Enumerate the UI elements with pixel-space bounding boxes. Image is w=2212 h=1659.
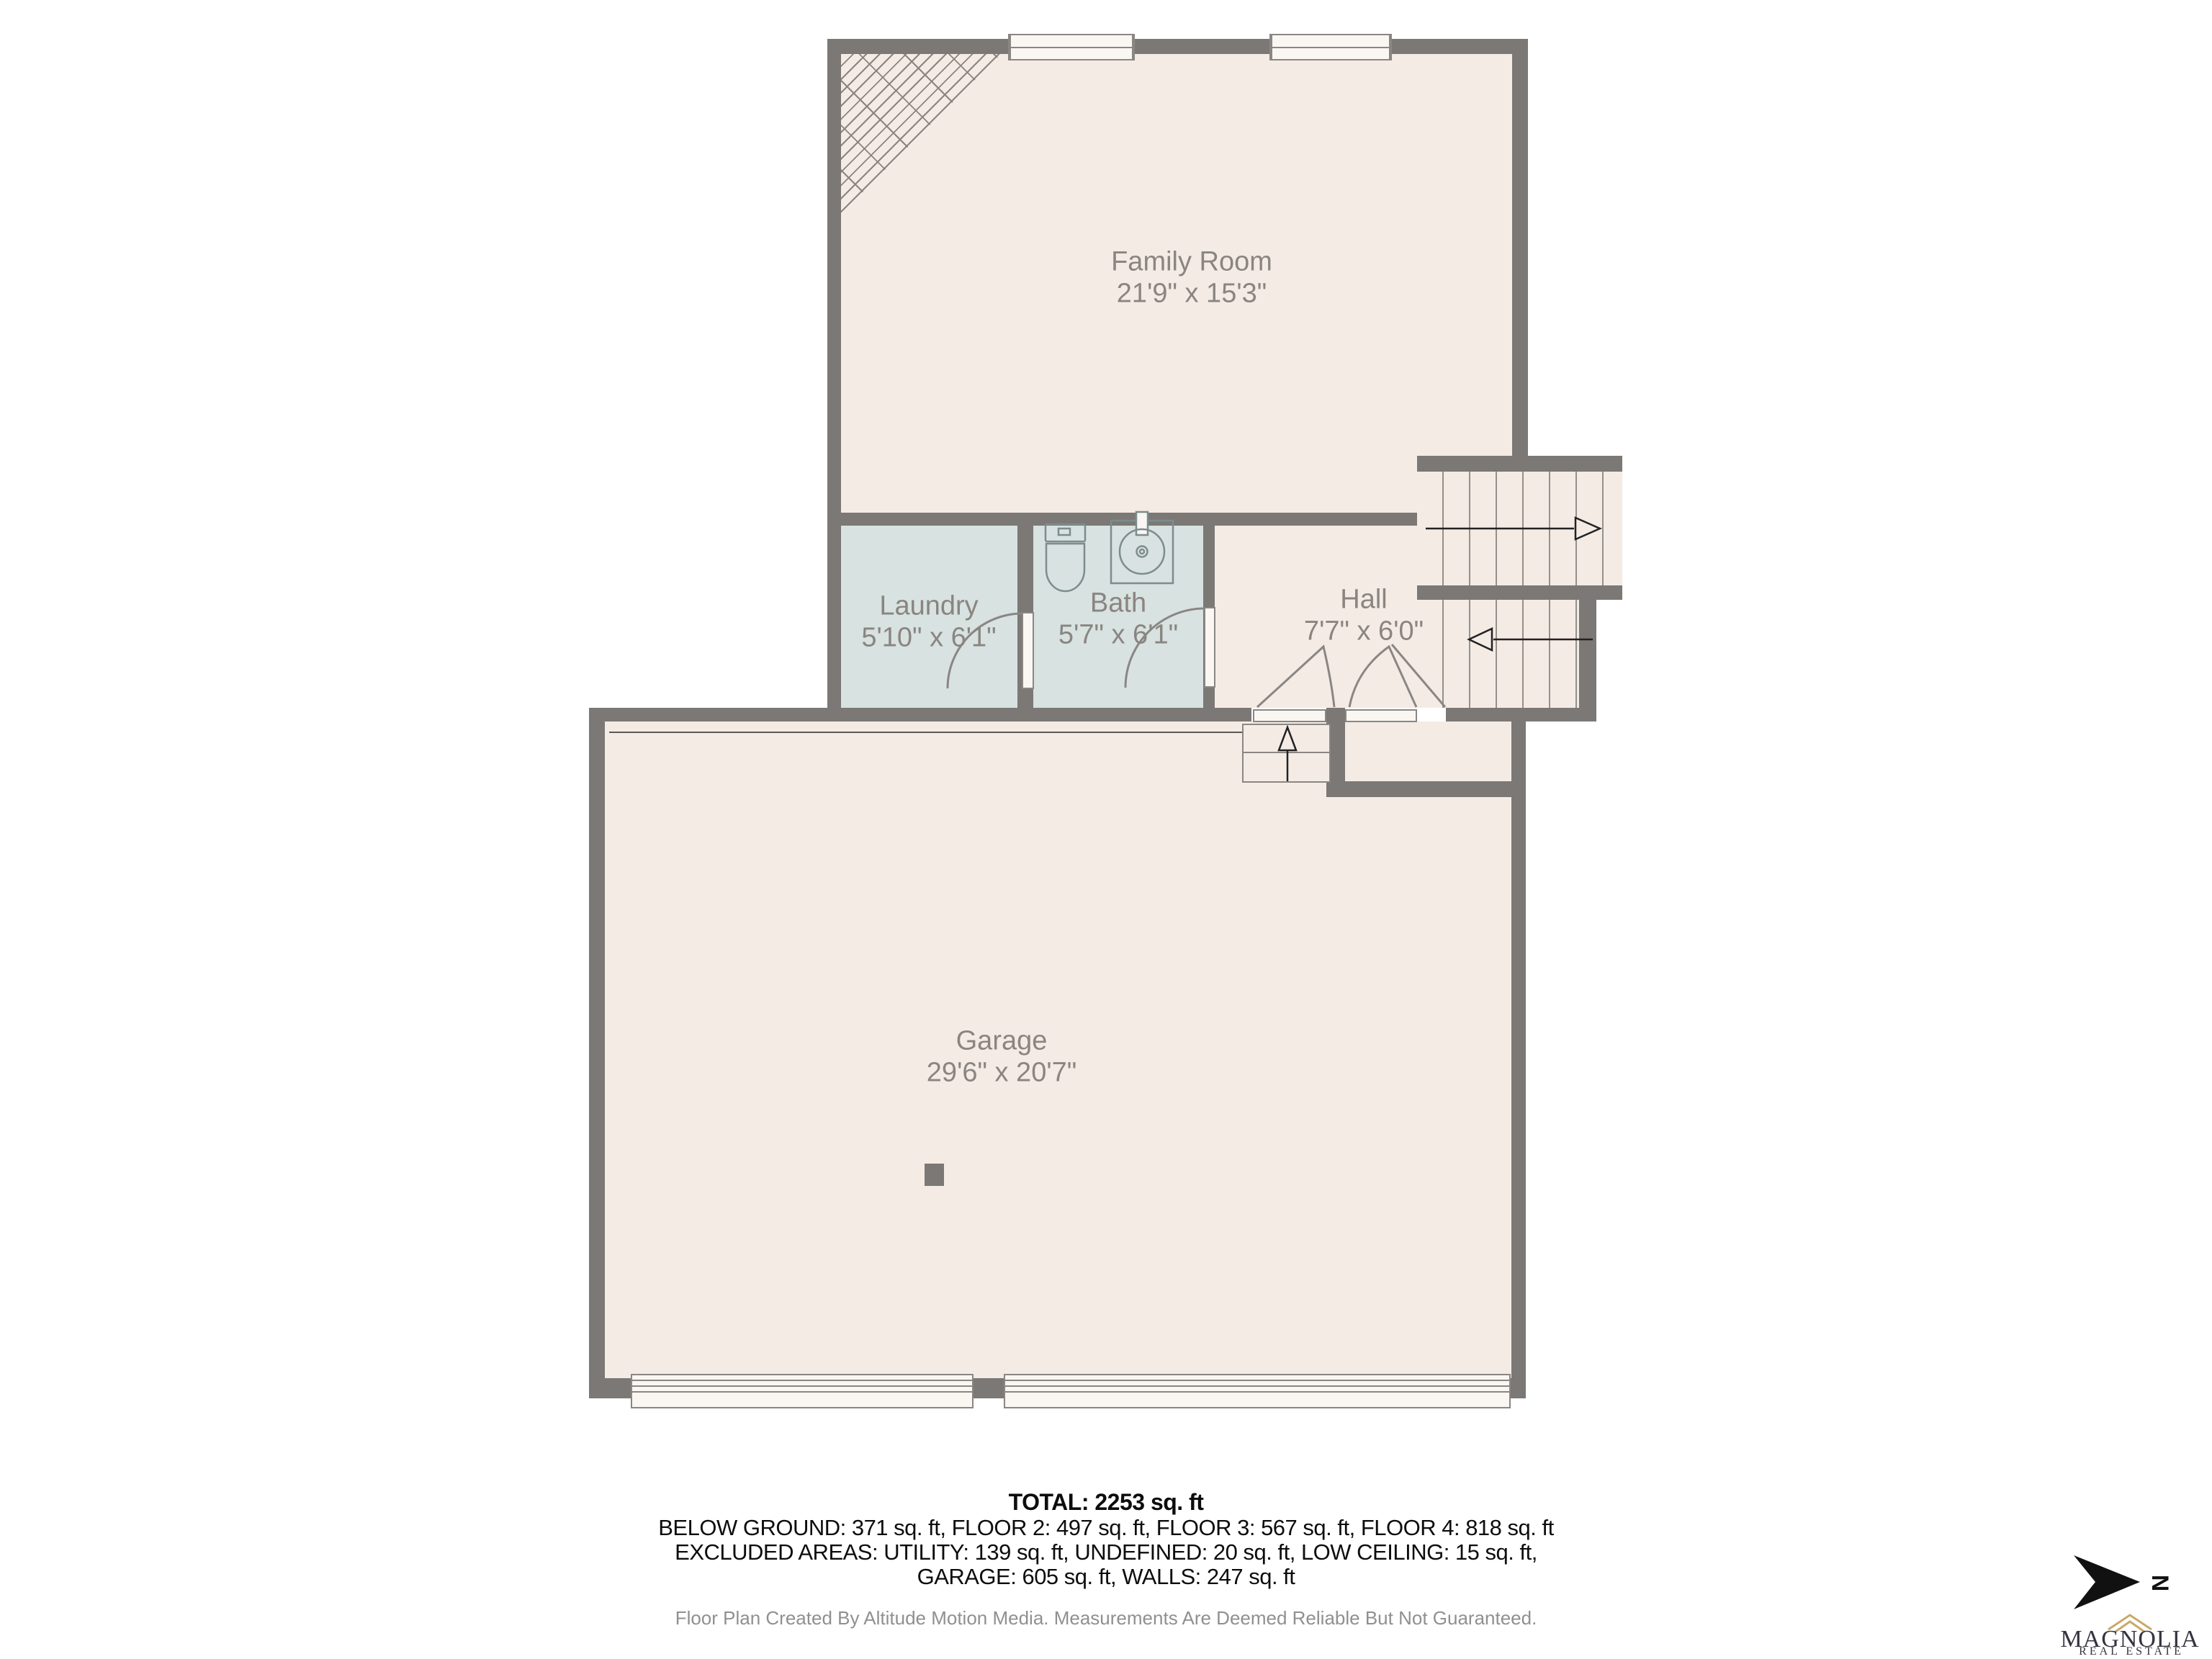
excluded-areas-line: EXCLUDED AREAS: UTILITY: 139 sq. ft, UND… <box>0 1539 2212 1565</box>
plan-detail-overlay <box>0 0 2212 1659</box>
room-name: Laundry <box>861 590 996 622</box>
garage-steps-up-arrow-icon <box>1279 727 1296 781</box>
floor-plan-canvas: Family Room 21'9" x 15'3" Laundry 5'10" … <box>0 0 2212 1659</box>
garage-walls-line: GARAGE: 605 sq. ft, WALLS: 247 sq. ft <box>0 1564 2212 1590</box>
stairs-down-arrow-icon <box>1469 629 1593 650</box>
room-label-bath: Bath 5'7" x 6'1" <box>1058 588 1178 651</box>
stair-break-line <box>1392 644 1445 707</box>
stairs-up-arrow-icon <box>1426 518 1600 539</box>
room-dims: 29'6" x 20'7" <box>927 1057 1076 1089</box>
room-name: Bath <box>1058 588 1178 619</box>
north-label: N <box>2146 1575 2173 1591</box>
room-dims: 21'9" x 15'3" <box>1111 278 1272 310</box>
brand-tagline: REAL ESTATE <box>2079 1645 2184 1658</box>
room-label-laundry: Laundry 5'10" x 6'1" <box>861 590 996 654</box>
sink-icon <box>1111 512 1173 583</box>
door-swing-hall-left-icon <box>1257 647 1334 707</box>
credit-line: Floor Plan Created By Altitude Motion Me… <box>0 1607 2212 1629</box>
toilet-icon <box>1046 524 1085 591</box>
room-label-hall: Hall 7'7" x 6'0" <box>1304 584 1424 647</box>
door-swing-hall-right-icon <box>1349 647 1416 707</box>
floor-areas-line: BELOW GROUND: 371 sq. ft, FLOOR 2: 497 s… <box>0 1515 2212 1541</box>
room-label-garage: Garage 29'6" x 20'7" <box>927 1025 1076 1089</box>
room-dims: 5'10" x 6'1" <box>861 622 996 654</box>
room-name: Family Room <box>1111 246 1272 278</box>
room-dims: 5'7" x 6'1" <box>1058 619 1178 651</box>
total-area-line: TOTAL: 2253 sq. ft <box>0 1489 2212 1516</box>
room-label-family-room: Family Room 21'9" x 15'3" <box>1111 246 1272 310</box>
room-dims: 7'7" x 6'0" <box>1304 616 1424 647</box>
room-name: Garage <box>927 1025 1076 1057</box>
room-name: Hall <box>1304 584 1424 616</box>
